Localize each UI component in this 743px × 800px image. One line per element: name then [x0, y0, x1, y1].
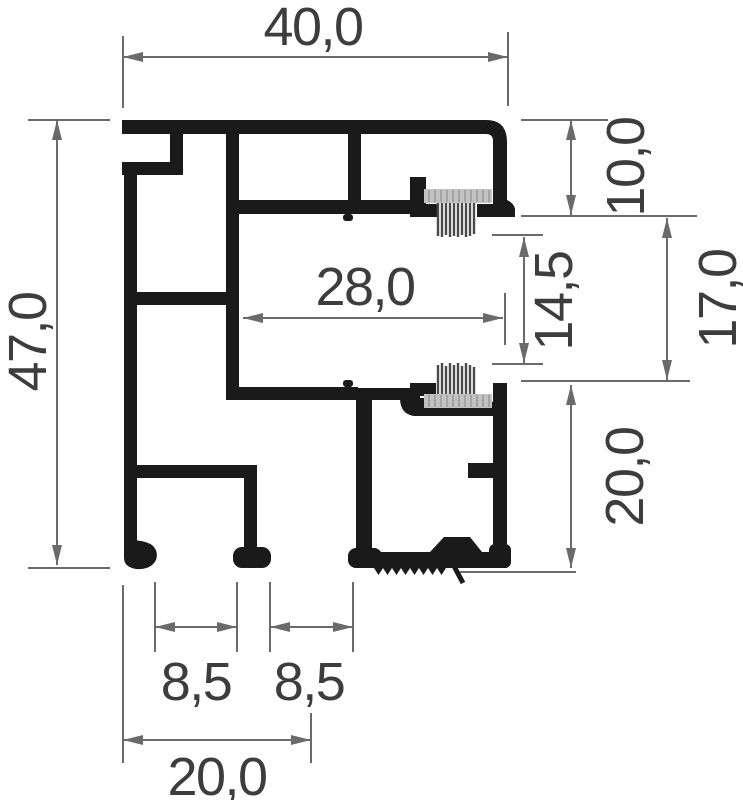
profile-top-seal-right-lip [477, 204, 493, 217]
profile-wall-vertical-top [348, 132, 361, 202]
profile-nub-bottom [343, 380, 353, 387]
profile-wall-vertical-main [226, 132, 239, 400]
dim-label-top-width: 40,0 [263, 0, 362, 57]
dim-label-lower-channel-height: 20,0 [595, 427, 655, 526]
arrowhead [566, 548, 576, 568]
arrowhead [662, 360, 672, 380]
arrowhead [52, 120, 62, 140]
arrowhead [662, 218, 672, 238]
profile-wall-horizontal-upper [124, 292, 239, 305]
arrowhead [483, 313, 503, 323]
dim-label-right-groove: 8,5 [274, 652, 345, 712]
arrowhead [566, 385, 576, 405]
arrowhead [566, 195, 576, 215]
profile-bottom-bar [356, 552, 507, 568]
profile-trapezoid-bump [430, 537, 482, 552]
arrowhead [333, 622, 353, 632]
profile-top-left-hook [122, 132, 183, 175]
dim-label-left-groove: 8,5 [161, 652, 232, 712]
profile-left-foot [124, 531, 157, 569]
profile-right-tab [468, 463, 493, 478]
brush-backing-top [424, 189, 492, 203]
brush-backing-bottom [424, 394, 492, 408]
arrowhead [566, 120, 576, 140]
arrowhead [243, 313, 263, 323]
dim-label-opening-height: 17,0 [688, 249, 743, 348]
arrowhead [52, 545, 62, 565]
dim-label-inner-width: 28,0 [315, 257, 414, 317]
profile-cross-section-drawing: 40,0 47,0 10,0 17,0 14,5 28,0 20,0 8,5 8… [0, 0, 743, 800]
profile-left-wall [124, 175, 137, 543]
brush-bristles-top [438, 203, 474, 237]
profile-wall-bottom-left [124, 465, 257, 478]
brush-bristles-bottom [438, 363, 474, 394]
arrowhead [270, 622, 290, 632]
arrowhead [488, 52, 508, 62]
dim-label-overall-height: 47,0 [0, 292, 58, 391]
profile-nub-top [343, 214, 353, 221]
profile-wall-horizontal-lower [226, 387, 358, 400]
dim-label-bottom-width: 20,0 [167, 747, 266, 800]
arrowhead [123, 735, 143, 745]
dim-label-top-channel-depth: 10,0 [596, 117, 656, 216]
profile-middle-foot [233, 547, 271, 568]
profile-shape [122, 120, 515, 575]
arrowhead [217, 622, 237, 632]
profile-wall-vertical-bottom [356, 400, 372, 554]
profile-shelf-top [238, 200, 418, 214]
arrowhead [123, 52, 143, 62]
profile-middle-stem [244, 477, 257, 552]
arrowhead [155, 622, 175, 632]
arrowhead [291, 735, 311, 745]
profile-right-wall-lower [493, 383, 507, 568]
dim-label-brush-gap: 14,5 [524, 251, 584, 350]
profile-serration-teeth [374, 568, 446, 575]
